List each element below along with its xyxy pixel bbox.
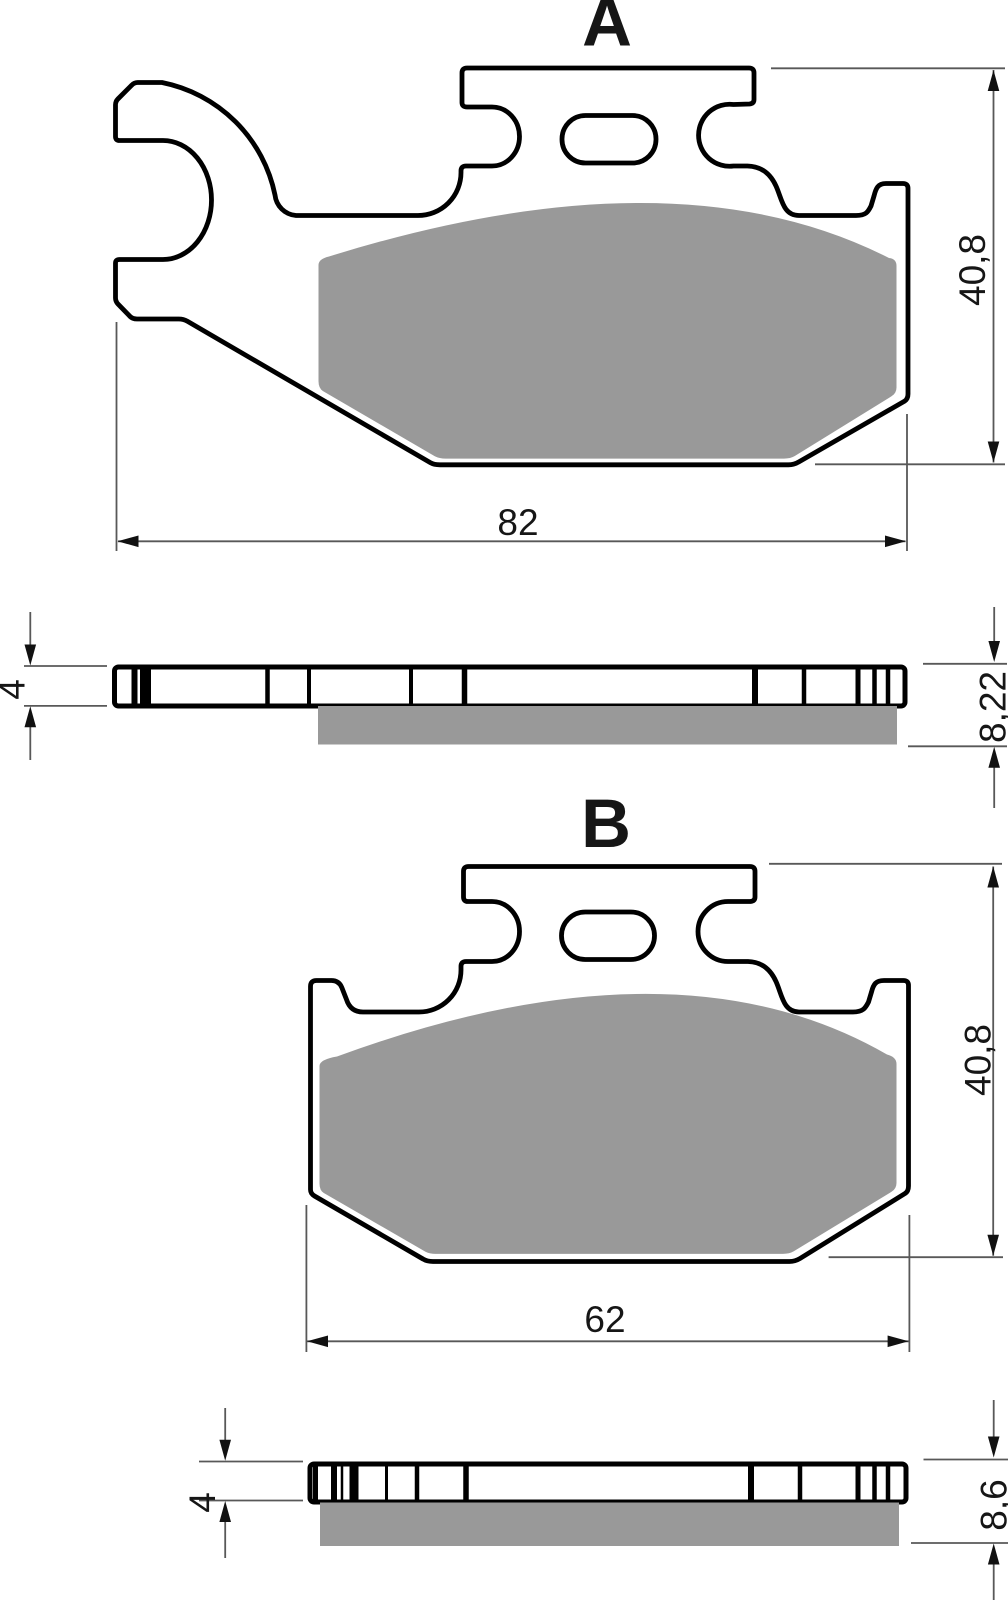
svg-text:40,8: 40,8 [952, 234, 993, 306]
svg-text:A: A [582, 0, 632, 61]
svg-text:4: 4 [182, 1492, 223, 1513]
svg-text:62: 62 [584, 1299, 625, 1340]
svg-text:4: 4 [0, 679, 33, 700]
svg-text:82: 82 [497, 502, 538, 543]
svg-text:8,6: 8,6 [974, 1479, 1008, 1530]
svg-text:B: B [581, 785, 631, 862]
svg-text:40,8: 40,8 [958, 1024, 999, 1096]
svg-text:8,22: 8,22 [973, 671, 1008, 743]
